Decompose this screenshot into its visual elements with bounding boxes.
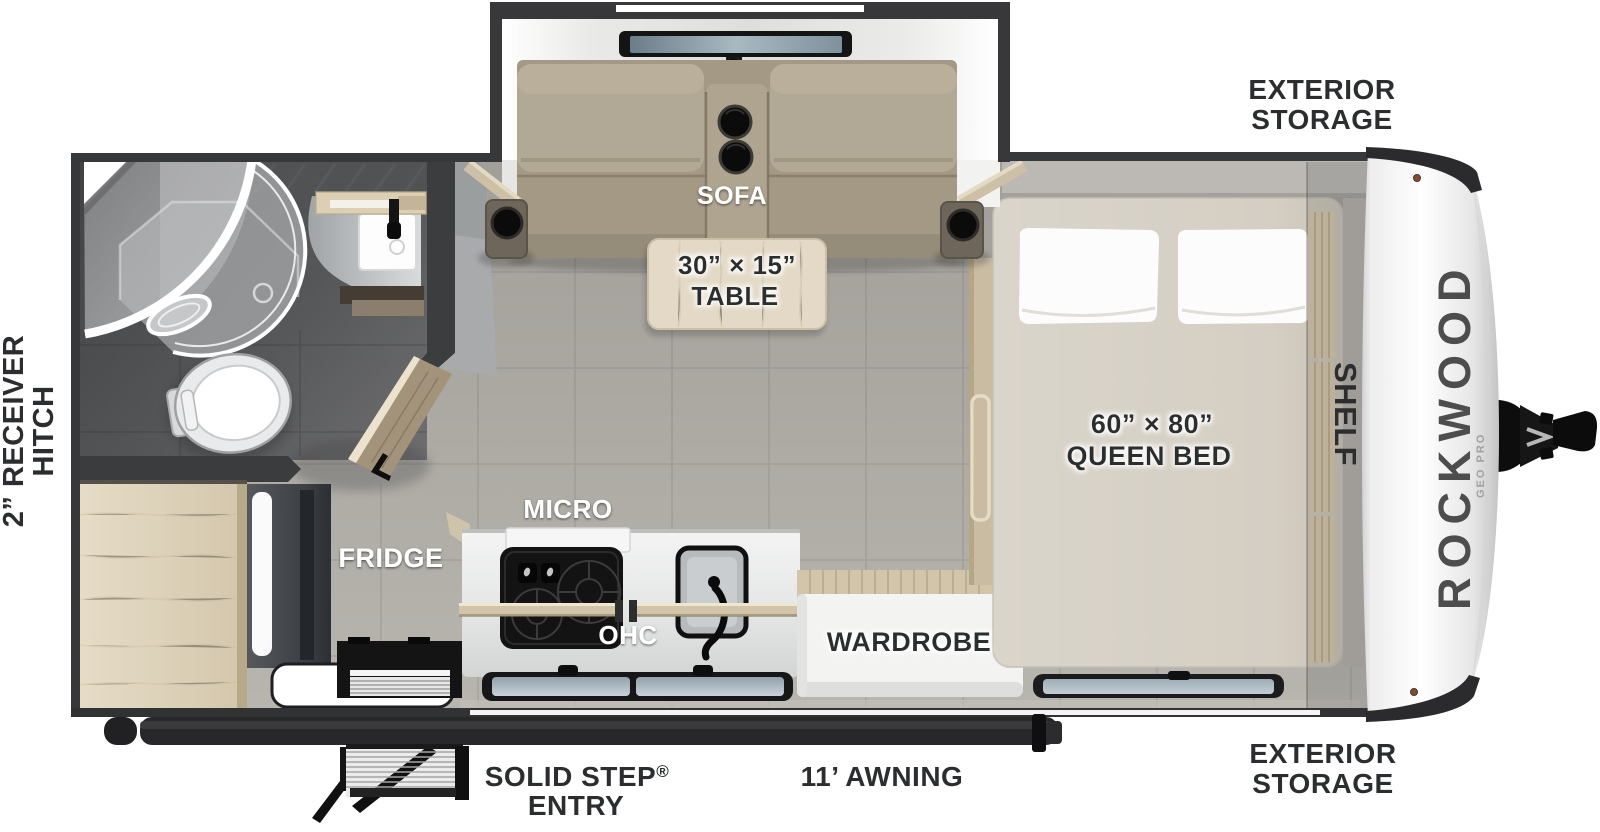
svg-text:STORAGE: STORAGE xyxy=(1252,768,1393,799)
svg-text:OHC: OHC xyxy=(598,620,657,650)
svg-text:2” RECEIVER: 2” RECEIVER xyxy=(0,335,30,527)
svg-text:SOLID STEP®: SOLID STEP® xyxy=(485,761,670,792)
svg-text:FRIDGE: FRIDGE xyxy=(338,543,443,573)
svg-text:11’ AWNING: 11’ AWNING xyxy=(801,761,964,792)
svg-text:SOFA: SOFA xyxy=(697,182,767,210)
svg-text:TABLE: TABLE xyxy=(691,281,778,311)
svg-text:EXTERIOR: EXTERIOR xyxy=(1249,738,1396,769)
svg-text:EXTERIOR: EXTERIOR xyxy=(1248,74,1395,105)
svg-text:MICRO: MICRO xyxy=(523,494,612,524)
svg-text:60” × 80”: 60” × 80” xyxy=(1091,409,1213,439)
svg-text:HITCH: HITCH xyxy=(28,385,60,476)
svg-text:SHELF: SHELF xyxy=(1328,362,1363,466)
svg-text:WARDROBE: WARDROBE xyxy=(827,627,992,657)
svg-text:STORAGE: STORAGE xyxy=(1251,104,1392,135)
svg-text:30” × 15”: 30” × 15” xyxy=(678,250,796,280)
svg-text:QUEEN BED: QUEEN BED xyxy=(1066,441,1231,471)
svg-text:ROCKWOOD: ROCKWOOD xyxy=(1429,261,1480,610)
svg-text:GEO PRO: GEO PRO xyxy=(1475,433,1487,498)
svg-text:ENTRY: ENTRY xyxy=(528,790,624,821)
